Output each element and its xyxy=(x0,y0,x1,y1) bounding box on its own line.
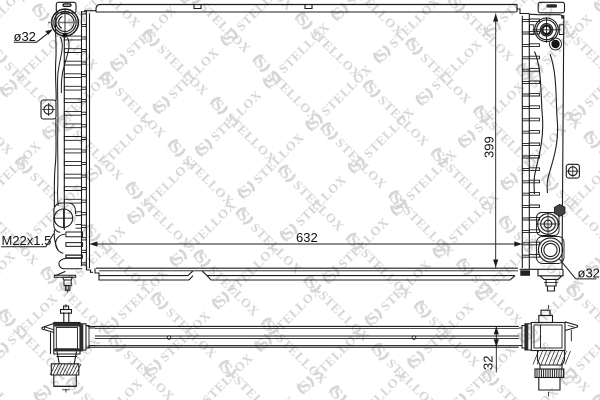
svg-text:632: 632 xyxy=(296,230,318,245)
svg-text:32: 32 xyxy=(481,356,496,370)
svg-text:ø32: ø32 xyxy=(578,266,600,281)
svg-text:399: 399 xyxy=(482,136,497,158)
svg-text:M22x1.5: M22x1.5 xyxy=(2,233,52,248)
